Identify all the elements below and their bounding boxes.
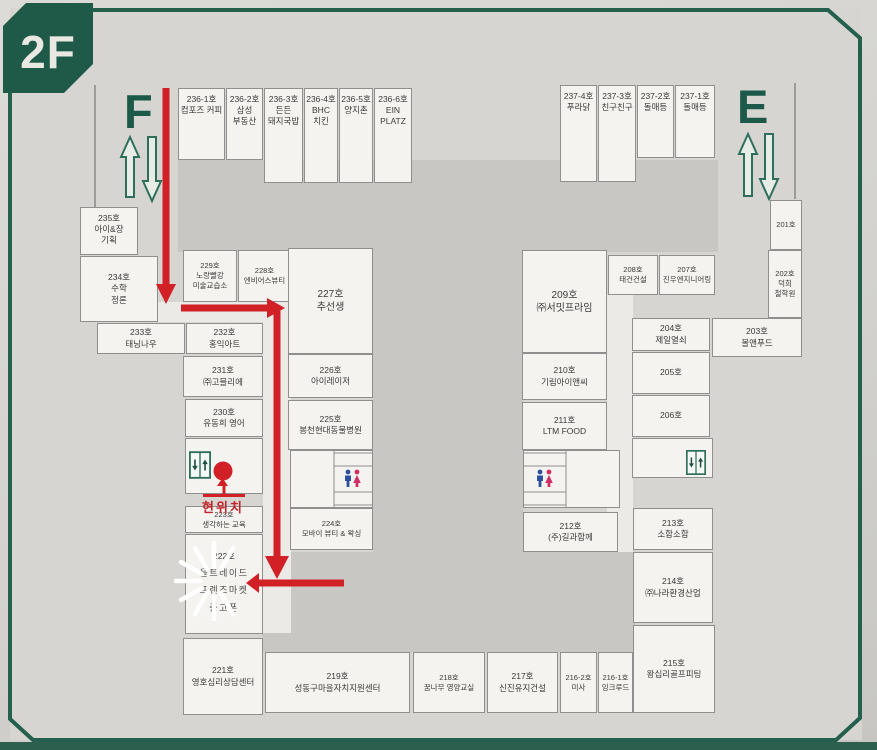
room-237-4: 237-4호푸라닭 — [560, 85, 597, 182]
room-233: 233호태닝나우 — [97, 323, 185, 354]
up-arrow-icon — [121, 137, 139, 197]
void-top — [178, 160, 718, 252]
room-236-2: 236-2호삼성 부동산 — [226, 88, 263, 160]
elevator-icon — [189, 451, 211, 479]
room-236-6: 236-6호EIN PLATZ — [374, 88, 412, 183]
room-203: 203호볼앤푸드 — [712, 318, 802, 357]
room-216-2: 216-2호미사 — [560, 652, 597, 713]
room-237-3: 237-3호친구친구 — [598, 85, 636, 182]
room-215: 215호왕십리골프피팅 — [633, 625, 715, 713]
down-arrow-icon — [760, 134, 778, 199]
room-210: 210호기림아이앤씨 — [522, 353, 607, 400]
room-225: 225호봉천현대동물병원 — [288, 400, 373, 450]
room-205: 205호 — [632, 352, 710, 394]
room-217: 217호신진유지건설 — [487, 652, 558, 713]
room-212: 212호(주)길과함께 — [523, 512, 618, 552]
restroom-area-east — [523, 450, 620, 508]
void-courtyard — [373, 252, 523, 552]
room-231: 231호㈜고믈리에 — [183, 356, 263, 397]
restroom-area-west — [290, 450, 373, 508]
room-206: 206호 — [632, 395, 710, 437]
room-230: 230호유동희 영어 — [185, 399, 263, 437]
down-arrow-icon — [143, 137, 161, 201]
floor-label: 2F — [16, 25, 80, 79]
void-lower — [262, 552, 635, 652]
room-219: 219호성동구마을자치지원센터 — [265, 652, 410, 713]
room-237-2: 237-2호돌매등 — [637, 85, 674, 158]
room-228: 228호엔비어스뷰티 — [238, 250, 291, 302]
room-236-3: 236-3호든든 돼지국밥 — [264, 88, 303, 183]
room-236-1: 236-1호컴포즈 커피 — [178, 88, 225, 160]
room-234: 234호수학 정론 — [80, 256, 158, 322]
room-236-5: 236-5호양지촌 — [339, 88, 373, 183]
down-arrowhead — [156, 284, 176, 304]
room-211: 211호LTM FOOD — [522, 402, 607, 450]
up-arrow-icon — [739, 134, 757, 196]
room-235: 235호아이&장 기획 — [80, 207, 138, 255]
room-204: 204호제일열쇠 — [632, 318, 710, 351]
current-location-label: 현위치 — [197, 497, 249, 516]
photo-bottom-edge — [0, 742, 877, 750]
room-232: 232호홍익아트 — [186, 323, 263, 354]
room-208: 208호태건건설 — [608, 255, 658, 295]
room-209: 209호㈜서밋프라임 — [522, 250, 607, 353]
room-226: 226호아이레이저 — [288, 354, 373, 398]
floor-map: 2F F E 236-1호컴포즈 커피 236-2호삼성 부동산 236-3호든… — [0, 0, 877, 750]
room-229: 229호노랑빨강 미술교습소 — [183, 250, 237, 302]
escalator-f-label: F — [124, 84, 153, 139]
room-236-4: 236-4호BHC 치킨 — [304, 88, 338, 183]
room-221: 221호영호심리상담센터 — [183, 638, 263, 715]
room-216-1: 216-1호잉크루드 — [598, 652, 633, 713]
escalator-e-label: E — [737, 79, 768, 134]
elevator-icon — [686, 449, 706, 476]
room-207: 207호진우엔지니어링 — [659, 255, 715, 295]
room-237-1: 237-1호돌매등 — [675, 85, 715, 158]
highlight-starburst-icon — [170, 540, 260, 630]
room-227: 227호추선생 — [288, 248, 373, 354]
room-213: 213호소함소함 — [633, 508, 713, 550]
room-218: 218호꿈나무 영양교실 — [413, 652, 485, 713]
room-224: 224호모바이 뷰티 & 왁싱 — [290, 508, 373, 550]
corridor-center-west — [263, 300, 291, 633]
room-201: 201호 — [770, 200, 802, 250]
room-202: 202호덕희 철학원 — [768, 250, 802, 318]
room-214: 214호㈜나라환경산업 — [633, 552, 713, 623]
